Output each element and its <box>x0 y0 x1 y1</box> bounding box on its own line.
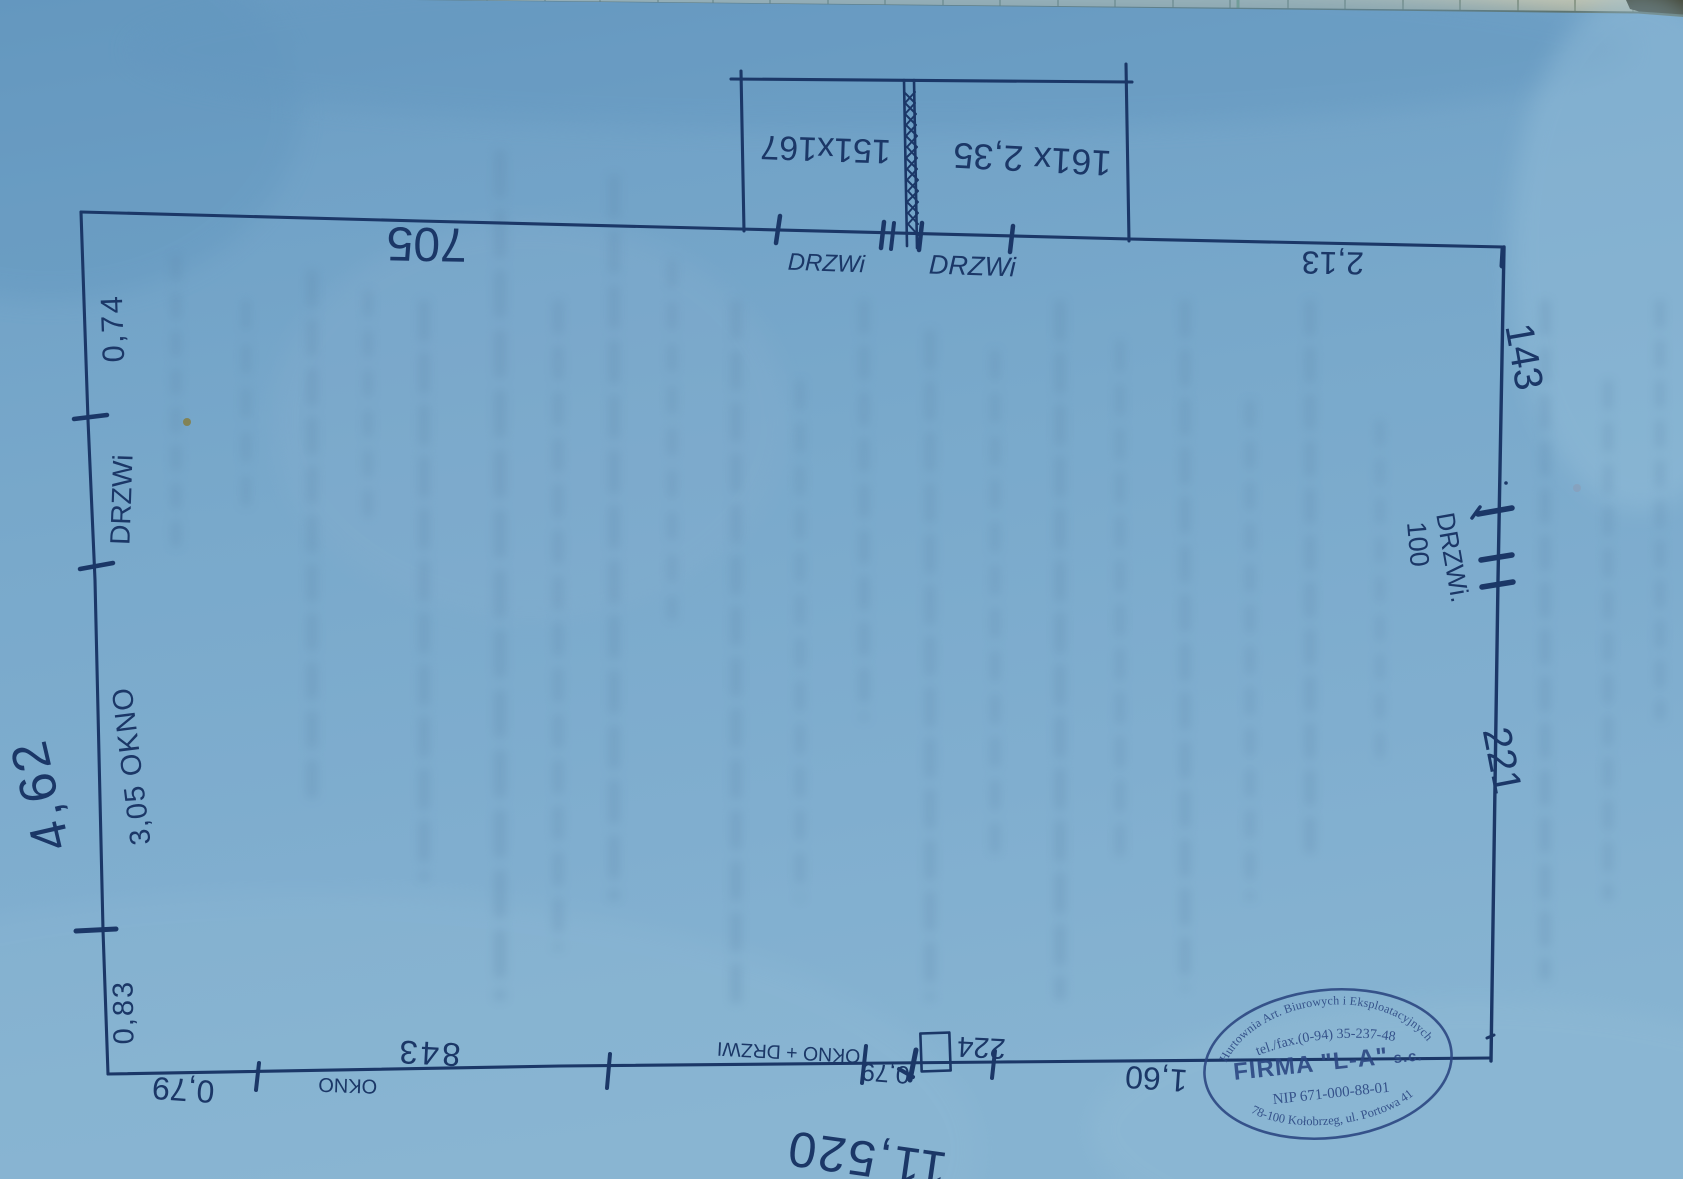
svg-text:0,74: 0,74 <box>94 294 131 364</box>
svg-text:DRZWi: DRZWi <box>928 250 1017 283</box>
svg-text:1,60: 1,60 <box>1124 1059 1189 1099</box>
svg-text:161x 2,35: 161x 2,35 <box>952 135 1112 184</box>
svg-text:DRZWi: DRZWi <box>787 249 866 279</box>
svg-text:DRZWi: DRZWi <box>104 454 138 545</box>
svg-text:843: 843 <box>395 1033 461 1073</box>
svg-text:100: 100 <box>1401 520 1435 568</box>
svg-text:705: 705 <box>386 216 467 270</box>
svg-text:0,83: 0,83 <box>107 980 140 1045</box>
svg-text:224: 224 <box>957 1030 1007 1064</box>
svg-text:2,13: 2,13 <box>1301 244 1364 281</box>
svg-text:OKNO: OKNO <box>318 1073 378 1097</box>
svg-text:0,79: 0,79 <box>151 1070 216 1110</box>
svg-text:151x167: 151x167 <box>760 128 892 171</box>
svg-text:0,79: 0,79 <box>860 1057 911 1088</box>
